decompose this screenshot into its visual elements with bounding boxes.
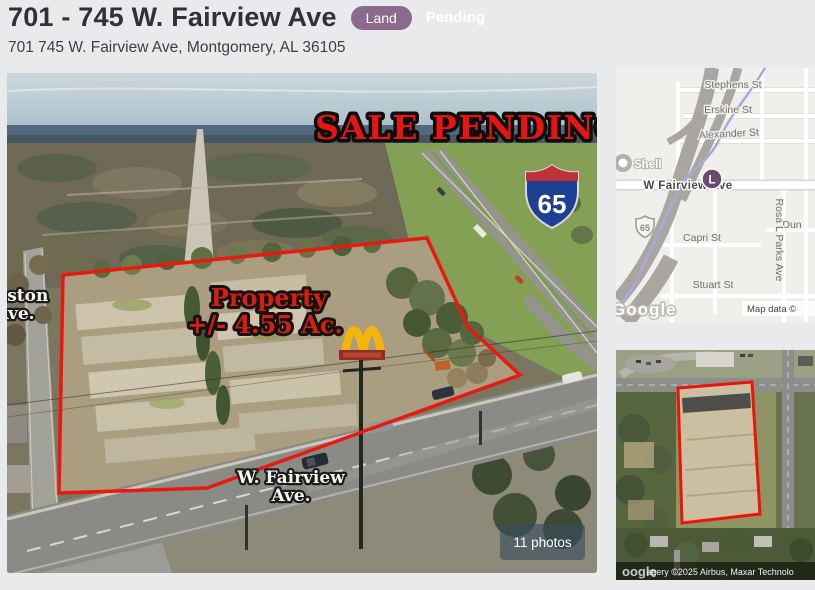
photo-count-badge[interactable]: 11 photos: [500, 524, 585, 560]
street-label-erskine: Erskine St: [704, 104, 752, 116]
mcdonalds-arches-icon: [339, 330, 385, 360]
page-title: 701 - 745 W. Fairview Ave: [8, 2, 337, 33]
map-attribution: Map data ©: [747, 304, 796, 315]
satellite-art: oogle agery ©2025 Airbus, Maxar Technolo: [616, 350, 815, 580]
gaston-ave-label-line2: Ave.: [7, 304, 35, 324]
google-watermark: Google: [616, 300, 677, 319]
property-label-line2: +/- 4.55 Ac.: [187, 310, 343, 339]
satellite-view[interactable]: oogle agery ©2025 Airbus, Maxar Technolo: [616, 350, 815, 580]
map-interstate-number: 65: [640, 223, 650, 233]
gaston-ave-label-line1: Gaston: [7, 286, 48, 306]
sale-pending-overlay: SALE PENDING: [315, 108, 597, 147]
location-marker-icon[interactable]: L: [702, 169, 722, 189]
shell-label: Shell: [634, 159, 661, 171]
listing-header: 701 - 745 W. Fairview Ave Land Pending 7…: [8, 2, 608, 57]
satellite-attribution: agery ©2025 Airbus, Maxar Technolo: [646, 567, 794, 577]
address-line: 701 745 W. Fairview Ave, Montgomery, AL …: [8, 39, 608, 57]
street-label-rosa-parks: Rosa L Parks Ave: [773, 199, 785, 282]
location-map[interactable]: Shell Stephens St Erskine St Alexander S…: [616, 68, 815, 322]
interstate-number: 65: [538, 189, 567, 219]
status-badge: Pending: [426, 9, 485, 26]
fairview-ave-label-line2: Ave.: [270, 486, 310, 506]
fairview-ave-label-line1: W. Fairview: [236, 468, 345, 488]
aerial-photo-art: 65 SALE PENDING Property +/- 4.55 Ac. Ga…: [7, 73, 597, 573]
street-label-capri: Capri St: [683, 232, 721, 244]
map-art: Shell Stephens St Erskine St Alexander S…: [616, 68, 815, 322]
street-label-stuart: Stuart St: [693, 279, 734, 291]
property-label-line1: Property: [211, 283, 328, 312]
property-type-badge: Land: [351, 6, 412, 30]
street-label-stephens: Stephens St: [704, 79, 761, 91]
marker-letter: L: [708, 175, 715, 187]
main-listing-photo[interactable]: 65 SALE PENDING Property +/- 4.55 Ac. Ga…: [7, 73, 597, 573]
title-row: 701 - 745 W. Fairview Ave Land Pending: [8, 2, 608, 33]
